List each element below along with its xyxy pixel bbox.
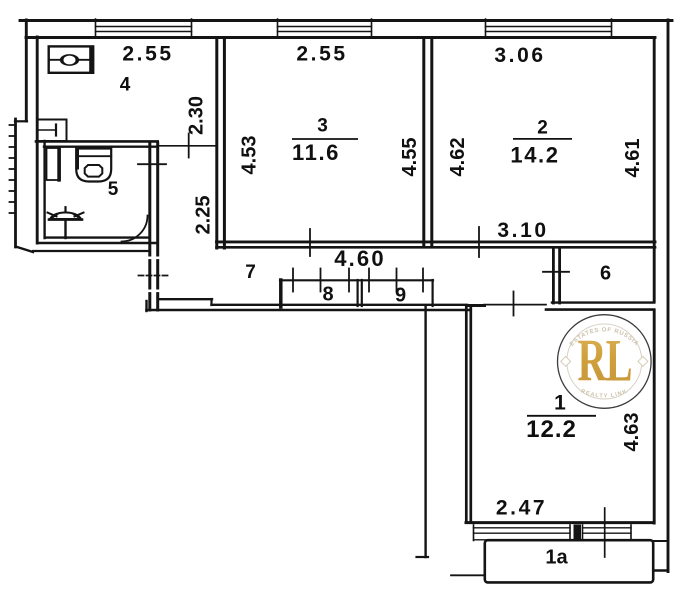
svg-text:3.10: 3.10 <box>497 219 548 242</box>
svg-text:4.63: 4.63 <box>621 413 643 452</box>
svg-text:2.55: 2.55 <box>296 43 347 66</box>
svg-text:4.62: 4.62 <box>447 138 469 177</box>
svg-text:8: 8 <box>322 284 333 306</box>
svg-text:3: 3 <box>317 116 328 137</box>
svg-text:5: 5 <box>108 179 119 200</box>
svg-text:2.55: 2.55 <box>122 43 173 66</box>
svg-text:3.06: 3.06 <box>494 44 545 67</box>
svg-text:RL: RL <box>577 328 631 395</box>
svg-text:2.47: 2.47 <box>496 497 547 520</box>
svg-text:7: 7 <box>245 262 256 283</box>
svg-text:1: 1 <box>554 392 566 415</box>
svg-text:4: 4 <box>120 75 131 96</box>
svg-text:2.30: 2.30 <box>186 96 208 135</box>
svg-text:9: 9 <box>395 285 406 307</box>
svg-text:14.2: 14.2 <box>510 143 559 168</box>
svg-text:4.60: 4.60 <box>334 246 386 271</box>
svg-text:6: 6 <box>600 263 611 285</box>
svg-text:2.25: 2.25 <box>193 196 215 235</box>
svg-text:1a: 1a <box>545 547 568 569</box>
svg-text:4.55: 4.55 <box>399 138 421 177</box>
svg-text:11.6: 11.6 <box>292 140 340 165</box>
svg-text:4.53: 4.53 <box>239 136 261 175</box>
svg-text:2: 2 <box>537 118 548 139</box>
svg-text:4.61: 4.61 <box>622 139 644 178</box>
svg-text:12.2: 12.2 <box>526 416 577 443</box>
